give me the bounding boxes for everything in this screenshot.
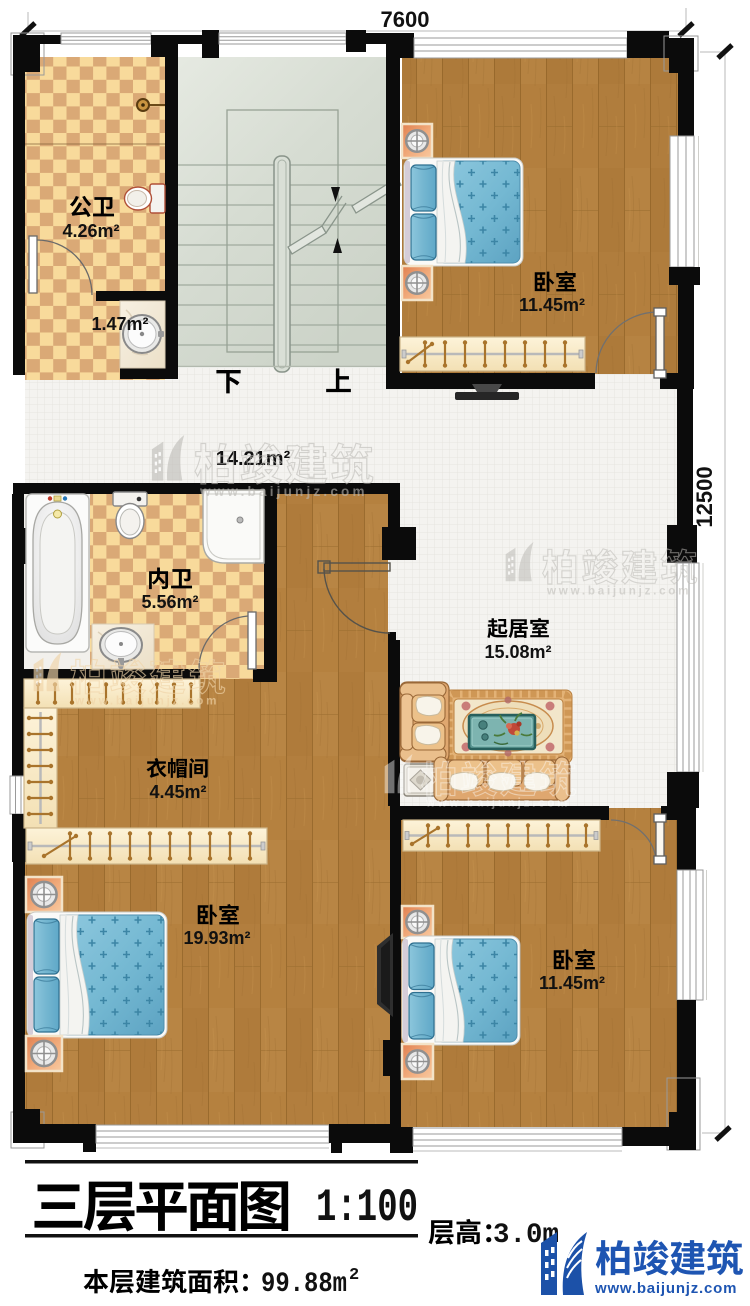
svg-text:4.45m²: 4.45m² xyxy=(149,782,206,802)
svg-text:1:100: 1:100 xyxy=(316,1182,418,1234)
svg-text:7600: 7600 xyxy=(381,7,430,32)
svg-text:5.56m²: 5.56m² xyxy=(141,592,198,612)
svg-text:www.baijunjz.com: www.baijunjz.com xyxy=(425,796,570,809)
svg-text:99.88m: 99.88m xyxy=(261,1269,347,1300)
svg-text:www.baijunjz.com: www.baijunjz.com xyxy=(199,484,368,499)
svg-text:4.26m²: 4.26m² xyxy=(62,221,119,241)
svg-text:15.08m²: 15.08m² xyxy=(484,642,551,662)
svg-text:2: 2 xyxy=(349,1266,359,1285)
svg-text:12500: 12500 xyxy=(692,466,717,527)
svg-text:19.93m²: 19.93m² xyxy=(183,928,250,948)
svg-text:11.45m²: 11.45m² xyxy=(519,295,585,315)
svg-text:11.45m²: 11.45m² xyxy=(539,973,605,993)
svg-text:www.baijunjz.com: www.baijunjz.com xyxy=(546,584,691,597)
svg-text:www.baijunjz.com: www.baijunjz.com xyxy=(74,694,219,707)
svg-text:1.47m²: 1.47m² xyxy=(91,314,148,334)
svg-text:www.baijunjz.com: www.baijunjz.com xyxy=(594,1280,737,1297)
